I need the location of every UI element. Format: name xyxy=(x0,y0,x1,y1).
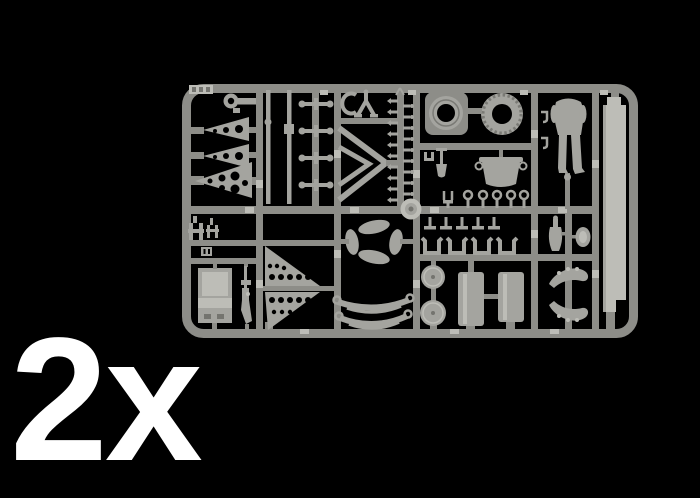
part-long-plank xyxy=(603,88,626,331)
part-rolled-tarps xyxy=(549,267,588,322)
part-eyelet-rings xyxy=(443,191,528,208)
part-wrench xyxy=(224,94,257,114)
part-soldier-figure xyxy=(541,99,587,210)
quantity-label: 2x xyxy=(10,312,200,488)
part-small-clamps xyxy=(188,216,219,256)
part-shovel xyxy=(424,148,447,178)
part-t-hooks xyxy=(424,217,500,230)
corner-tag xyxy=(189,85,213,94)
part-clamp-and-tow-fork xyxy=(342,90,378,118)
part-thin-rods xyxy=(265,90,295,204)
part-center-hub xyxy=(401,199,422,220)
part-pinwheel-curves xyxy=(341,217,413,266)
part-seat xyxy=(198,262,232,323)
part-cooking-pot xyxy=(476,150,527,187)
part-oil-drums xyxy=(458,259,524,326)
part-road-wheels xyxy=(420,259,446,326)
part-wheel-and-tire xyxy=(425,92,523,135)
part-rifle xyxy=(241,260,252,330)
part-leaf-springs xyxy=(334,295,414,329)
part-u-brackets xyxy=(422,238,517,253)
